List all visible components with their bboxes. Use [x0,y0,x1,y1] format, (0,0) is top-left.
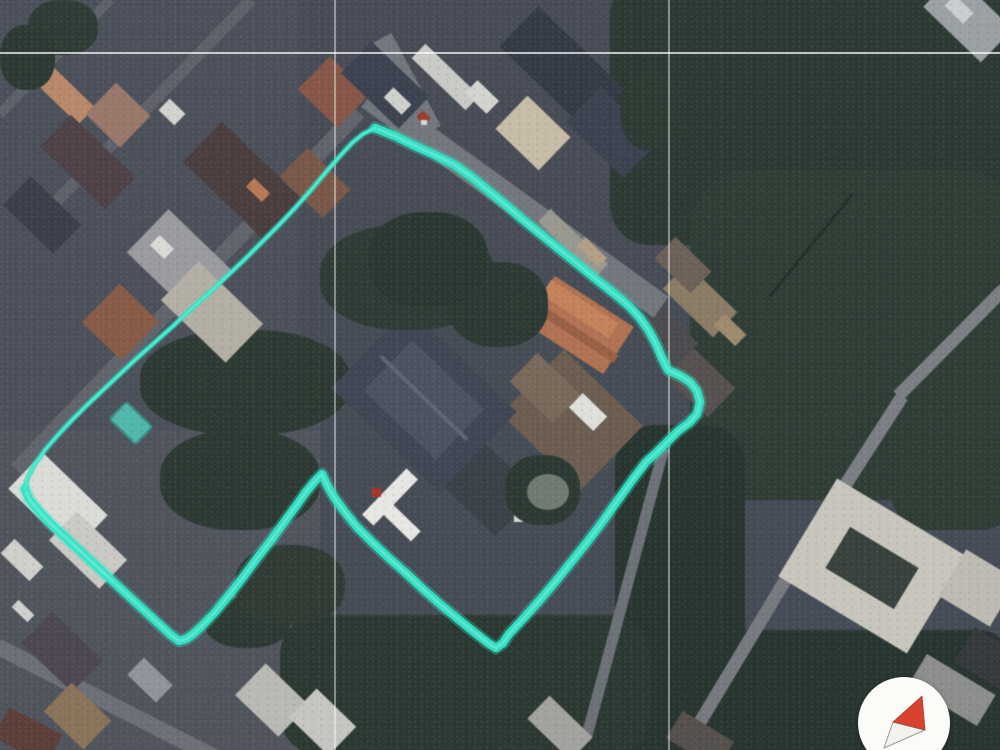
boundary-main-outline [25,128,700,648]
boundary-northwest-edge-thin [25,128,375,489]
compass-button[interactable] [846,669,962,750]
boundary-overlay [0,0,1000,750]
boundary-northwest-edge-thin [25,128,375,489]
boundary-main-outline [25,128,700,648]
boundary-northwest-edge-thin [25,128,375,489]
map-viewport[interactable] [0,0,1000,750]
boundary-main-outline [25,128,700,648]
